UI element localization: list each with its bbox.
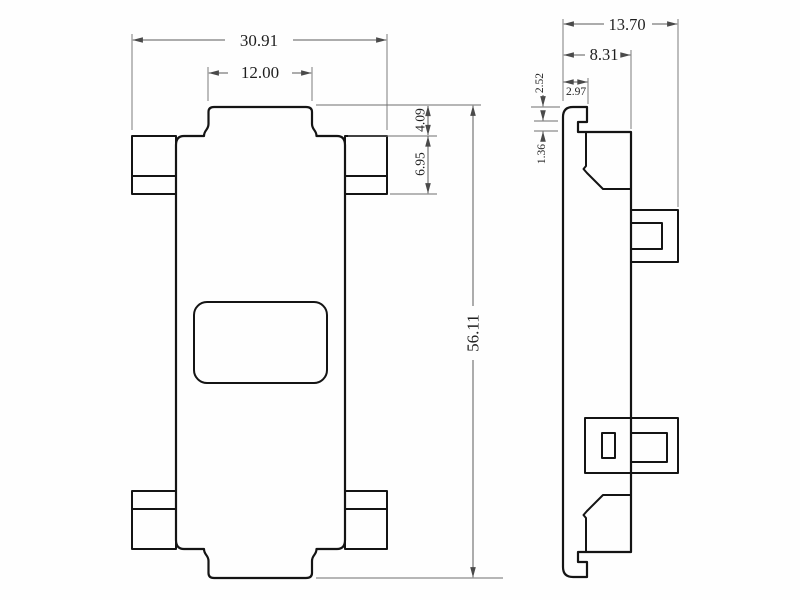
dim-latch-notch-height: 1.36: [536, 144, 548, 164]
dim-front-flange-depth: 2.97: [566, 86, 586, 98]
dim-top-step-depth: 2.52: [534, 73, 546, 93]
drawing-canvas: 30.91 12.00 4.09 6.95 56.11 13.70 8.31 2…: [0, 0, 800, 600]
side-clip-top-inner: [631, 223, 662, 249]
side-boss-edge-bottom: [584, 495, 632, 552]
front-ear-top-left: [132, 136, 176, 194]
dim-top-tab-width: 12.00: [241, 63, 279, 82]
front-ear-bottom-right: [345, 491, 387, 549]
front-center-window: [194, 302, 327, 383]
dim-overall-height: 56.11: [464, 314, 483, 352]
dim-overall-width: 30.91: [240, 31, 278, 50]
dim-mount-ear-height: 6.95: [413, 152, 428, 176]
front-ear-bottom-left: [132, 491, 176, 549]
front-ear-top-right: [345, 136, 387, 194]
front-view: [132, 107, 387, 578]
technical-drawing-svg: 30.91 12.00 4.09 6.95 56.11 13.70 8.31 2…: [0, 0, 800, 600]
extension-lines: [132, 19, 678, 578]
dim-tab-height: 4.09: [413, 108, 428, 132]
dim-body-depth: 8.31: [590, 45, 619, 64]
side-boss-edge-top: [584, 132, 632, 189]
side-clip-bottom-inner: [631, 433, 667, 462]
side-clip-top-outer: [631, 210, 678, 262]
front-body-outline: [176, 107, 345, 578]
side-clip-bottom-slot: [602, 433, 615, 458]
dim-overall-depth: 13.70: [608, 15, 645, 34]
side-profile-outline: [563, 107, 631, 577]
side-view: [563, 107, 678, 577]
